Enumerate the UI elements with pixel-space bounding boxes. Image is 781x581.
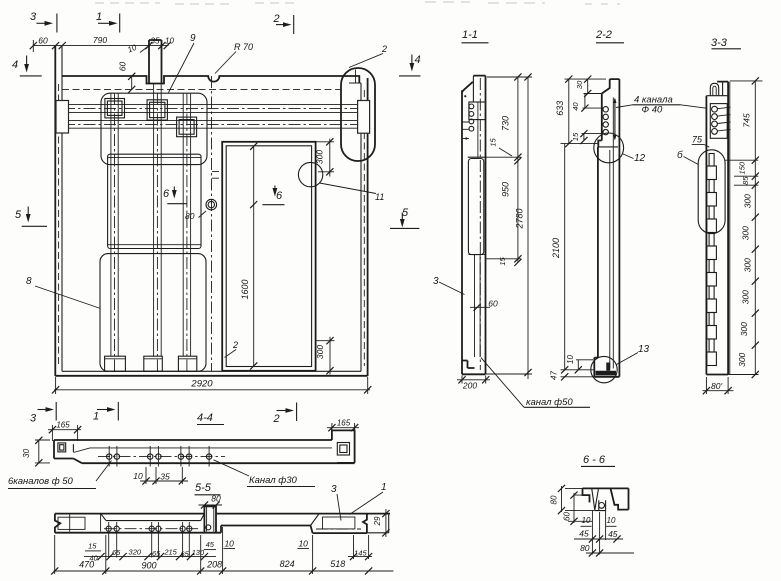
svg-text:канал ф50: канал ф50 [526, 397, 573, 408]
svg-text:Канал ф30: Канал ф30 [249, 475, 298, 486]
svg-text:R 70: R 70 [234, 42, 253, 52]
svg-text:2920: 2920 [190, 379, 213, 390]
svg-text:730: 730 [501, 116, 511, 131]
svg-text:4: 4 [12, 59, 18, 71]
svg-text:65: 65 [152, 549, 161, 558]
svg-text:2: 2 [381, 44, 387, 54]
svg-text:60: 60 [563, 512, 572, 521]
svg-text:45: 45 [579, 529, 589, 539]
svg-text:6каналов ф 50: 6каналов ф 50 [8, 476, 74, 487]
svg-text:320: 320 [129, 548, 142, 557]
svg-text:300: 300 [741, 290, 751, 304]
svg-text:80: 80 [580, 543, 590, 553]
svg-text:30: 30 [575, 80, 584, 89]
svg-text:65: 65 [112, 548, 121, 557]
svg-text:9: 9 [190, 33, 196, 44]
svg-text:15: 15 [489, 138, 498, 147]
svg-text:80: 80 [550, 495, 559, 504]
svg-text:3: 3 [433, 276, 439, 287]
svg-text:12: 12 [634, 153, 646, 164]
svg-text:165: 165 [337, 419, 351, 428]
svg-text:1600: 1600 [240, 279, 250, 299]
svg-text:2: 2 [273, 413, 280, 425]
svg-text:165: 165 [56, 421, 70, 430]
svg-text:Ф 40: Ф 40 [642, 105, 663, 116]
svg-text:150: 150 [738, 161, 747, 174]
svg-text:29: 29 [373, 516, 382, 526]
svg-text:2: 2 [273, 13, 280, 25]
svg-text:10: 10 [165, 37, 174, 46]
svg-text:3: 3 [30, 413, 37, 425]
svg-text:633: 633 [555, 101, 565, 116]
svg-text:1: 1 [96, 11, 102, 23]
svg-text:10: 10 [133, 471, 143, 481]
svg-text:300: 300 [739, 322, 749, 336]
svg-text:300: 300 [315, 150, 325, 164]
svg-text:10: 10 [607, 516, 616, 525]
svg-text:б: б [677, 149, 683, 161]
svg-text:5: 5 [15, 209, 22, 221]
svg-text:5: 5 [402, 207, 409, 219]
svg-text:790: 790 [93, 35, 107, 45]
svg-text:4: 4 [415, 54, 421, 66]
svg-text:3: 3 [30, 11, 37, 23]
svg-text:4-4: 4-4 [197, 412, 213, 424]
svg-text:11: 11 [375, 192, 384, 202]
svg-text:6 - 6: 6 - 6 [583, 454, 606, 466]
svg-text:300: 300 [743, 258, 753, 272]
svg-text:300: 300 [737, 352, 747, 366]
svg-text:2780: 2780 [515, 208, 525, 229]
svg-text:745: 745 [742, 113, 752, 127]
svg-text:10: 10 [566, 355, 575, 364]
svg-text:75: 75 [692, 135, 703, 145]
svg-text:60: 60 [118, 62, 128, 72]
svg-text:1: 1 [93, 411, 99, 423]
svg-text:10: 10 [582, 516, 591, 525]
svg-text:40: 40 [571, 102, 580, 111]
svg-text:130: 130 [192, 548, 205, 557]
svg-text:13: 13 [638, 344, 650, 355]
svg-text:900: 900 [141, 561, 156, 571]
svg-text:45: 45 [206, 540, 215, 549]
svg-text:300: 300 [743, 194, 753, 208]
svg-text:6: 6 [276, 190, 283, 202]
svg-text:2-2: 2-2 [595, 29, 612, 41]
svg-text:35: 35 [160, 472, 170, 482]
svg-text:6: 6 [163, 188, 170, 200]
svg-text:30: 30 [22, 448, 31, 457]
svg-text:3: 3 [331, 484, 337, 495]
svg-text:200: 200 [462, 381, 477, 391]
svg-text:80: 80 [185, 211, 195, 221]
svg-text:15: 15 [88, 542, 97, 551]
svg-text:3-3: 3-3 [711, 37, 728, 49]
svg-text:10: 10 [298, 539, 308, 549]
svg-text:15: 15 [498, 257, 507, 266]
svg-text:300: 300 [315, 345, 325, 359]
svg-text:2: 2 [232, 340, 238, 350]
svg-text:10: 10 [224, 539, 234, 549]
svg-text:1: 1 [381, 482, 387, 493]
svg-text:208: 208 [206, 560, 222, 570]
svg-text:215: 215 [163, 548, 177, 557]
svg-text:1-1: 1-1 [462, 29, 478, 41]
svg-text:65: 65 [181, 550, 190, 559]
svg-text:35: 35 [151, 37, 160, 46]
svg-text:8: 8 [26, 276, 32, 287]
svg-text:2100: 2100 [551, 238, 561, 259]
svg-text:85: 85 [741, 176, 750, 185]
svg-text:300: 300 [741, 226, 751, 240]
svg-text:60: 60 [38, 36, 48, 46]
svg-text:80': 80' [711, 381, 722, 391]
svg-text:60: 60 [488, 299, 498, 309]
svg-text:5-5: 5-5 [195, 482, 212, 494]
svg-text:15: 15 [571, 132, 580, 141]
svg-text:470: 470 [79, 560, 94, 570]
svg-text:47: 47 [549, 371, 558, 380]
svg-text:950: 950 [501, 182, 511, 197]
svg-text:824: 824 [280, 559, 295, 569]
svg-text:45: 45 [608, 529, 618, 539]
svg-text:518: 518 [330, 559, 345, 569]
